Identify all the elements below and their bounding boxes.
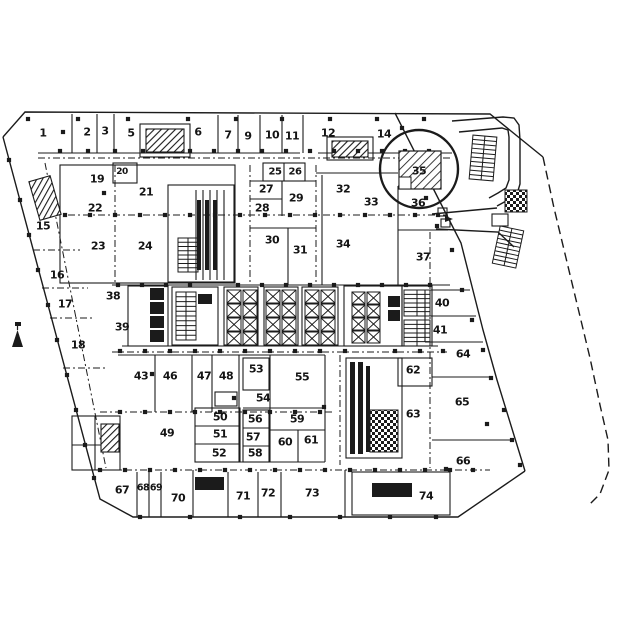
unit-label-56: 56 (248, 413, 263, 426)
unit-label-33: 33 (364, 196, 378, 209)
escalator-block-icon (29, 176, 61, 221)
column-dot (398, 468, 402, 472)
column-dot (234, 117, 238, 121)
column-dot (388, 515, 392, 519)
service-fill (150, 316, 164, 328)
unit-label-12: 12 (321, 127, 335, 140)
column-dot (260, 149, 264, 153)
column-dot (288, 213, 292, 217)
unit-label-51: 51 (213, 428, 227, 441)
column-dot (46, 303, 50, 307)
column-dot (280, 117, 284, 121)
unit-label-52: 52 (212, 447, 226, 460)
unit-label-16: 16 (50, 269, 65, 282)
column-dot (238, 515, 242, 519)
plan-root: 1235679101112141516171819202122232425262… (3, 112, 609, 519)
column-dot (36, 268, 40, 272)
column-dot (288, 515, 292, 519)
column-dot (489, 376, 493, 380)
column-dot (193, 410, 197, 414)
unit-label-57: 57 (246, 431, 260, 444)
column-dot (338, 213, 342, 217)
unit-label-40: 40 (435, 297, 450, 310)
service-fill (388, 296, 400, 307)
unit-label-10: 10 (265, 129, 280, 142)
unit-label-64: 64 (456, 348, 471, 361)
column-dot (116, 283, 120, 287)
stair-ladder-icon (404, 290, 430, 316)
service-fill (150, 330, 164, 342)
unit-label-17: 17 (58, 298, 72, 311)
column-dot (113, 213, 117, 217)
column-dot (140, 283, 144, 287)
column-dot (65, 373, 69, 377)
unit-label-9: 9 (244, 130, 251, 143)
stair-ladder-icon (176, 292, 196, 340)
column-dot (223, 468, 227, 472)
column-dot (298, 468, 302, 472)
column-dot (268, 349, 272, 353)
unit-label-38: 38 (106, 290, 120, 303)
unit-label-59: 59 (290, 413, 304, 426)
unit-label-54: 54 (256, 392, 271, 405)
column-dot (393, 349, 397, 353)
service-fill (366, 366, 370, 452)
column-dot (148, 468, 152, 472)
unit-label-30: 30 (265, 234, 280, 247)
column-dot (284, 149, 288, 153)
direction-markers (445, 216, 453, 222)
column-dot (356, 283, 360, 287)
unit-label-47: 47 (197, 370, 211, 383)
column-dot (27, 233, 31, 237)
unit-label-49: 49 (160, 427, 174, 440)
column-dot (308, 149, 312, 153)
column-dot (375, 117, 379, 121)
column-dot (163, 213, 167, 217)
unit-label-7: 7 (224, 129, 231, 142)
column-dot (332, 283, 336, 287)
column-dot (422, 117, 426, 121)
column-dot (164, 283, 168, 287)
unit-label-69: 69 (150, 483, 162, 494)
unit-label-67: 67 (115, 484, 129, 497)
column-dot (150, 372, 154, 376)
column-dot (435, 224, 439, 228)
site-boundary (543, 157, 609, 506)
wall-line (436, 229, 514, 247)
column-dot (61, 130, 65, 134)
unit-label-70: 70 (171, 492, 186, 505)
unit-label-11: 11 (285, 130, 299, 143)
unit-label-72: 72 (261, 487, 275, 500)
scanned-floor-plan: 1235679101112141516171819202122232425262… (0, 0, 630, 630)
column-dot (268, 410, 272, 414)
column-dot (102, 191, 106, 195)
column-dot (248, 468, 252, 472)
column-dot (322, 405, 326, 409)
column-dot (460, 288, 464, 292)
column-dot (118, 410, 122, 414)
unit-label-31: 31 (293, 244, 307, 257)
stair-ladder-icon (469, 135, 497, 181)
unit-label-46: 46 (163, 370, 178, 383)
ladder-rail (504, 228, 512, 265)
service-fill (213, 200, 217, 270)
column-dot (236, 283, 240, 287)
unit-label-43: 43 (134, 370, 148, 383)
service-fill (205, 200, 209, 270)
site-boundary-line (543, 157, 609, 506)
unit-label-3: 3 (101, 125, 108, 138)
column-dot (188, 515, 192, 519)
column-dot (273, 468, 277, 472)
unit-label-21: 21 (139, 186, 153, 199)
column-dot (441, 349, 445, 353)
column-dot (232, 396, 236, 400)
unit-label-58: 58 (248, 447, 262, 460)
unit-label-32: 32 (336, 183, 350, 196)
unit-label-18: 18 (71, 339, 85, 352)
column-dot (188, 213, 192, 217)
unit-label-2: 2 (83, 126, 90, 139)
unit-label-66: 66 (456, 455, 471, 468)
column-dot (198, 468, 202, 472)
column-dot (188, 283, 192, 287)
unit-label-36: 36 (411, 197, 426, 210)
column-dot (26, 117, 30, 121)
unit-label-65: 65 (455, 396, 469, 409)
highlighted-unit-notch (399, 177, 411, 189)
column-dot (318, 410, 322, 414)
unit-label-35: 35 (412, 165, 426, 178)
column-dot (518, 463, 522, 467)
column-dot (138, 515, 142, 519)
unit-label-68: 68 (137, 483, 150, 494)
column-dot (260, 283, 264, 287)
column-dot (485, 422, 489, 426)
column-dot (471, 468, 475, 472)
unit-label-62: 62 (406, 364, 420, 377)
column-dot (126, 117, 130, 121)
unit-label-27: 27 (259, 183, 273, 196)
service-fill (195, 477, 224, 490)
service-fill (150, 288, 164, 300)
column-dot (18, 198, 22, 202)
unit-label-60: 60 (278, 436, 293, 449)
column-dot (55, 338, 59, 342)
service-fill (388, 310, 400, 321)
unit-label-25: 25 (269, 167, 282, 178)
column-dot (418, 349, 422, 353)
column-dot (404, 283, 408, 287)
column-dot (318, 349, 322, 353)
column-dot (118, 349, 122, 353)
unit-label-74: 74 (419, 490, 434, 503)
unit-label-48: 48 (219, 370, 233, 383)
unit-label-26: 26 (289, 167, 302, 178)
unit-label-55: 55 (295, 371, 309, 384)
column-dot (7, 158, 11, 162)
column-dot (76, 117, 80, 121)
unit-label-71: 71 (236, 490, 250, 503)
machine-block-icon (505, 190, 527, 212)
north-arrow-triangle (12, 330, 23, 347)
partition-rect (264, 287, 298, 345)
unit-label-50: 50 (213, 411, 228, 424)
unit-label-73: 73 (305, 487, 319, 500)
column-dot (450, 248, 454, 252)
column-dot (138, 213, 142, 217)
column-dot (186, 117, 190, 121)
service-fill (358, 362, 363, 454)
column-dot (308, 283, 312, 287)
column-dot (212, 149, 216, 153)
column-dot (400, 126, 404, 130)
column-dot (218, 349, 222, 353)
unit-label-53: 53 (249, 363, 263, 376)
column-dot (348, 468, 352, 472)
unit-label-29: 29 (289, 192, 303, 205)
escalator-block-icon (332, 141, 368, 157)
column-dot (428, 283, 432, 287)
north-arrow-flag (15, 322, 21, 326)
service-fill (350, 362, 355, 454)
column-dot (141, 149, 145, 153)
column-dot (168, 349, 172, 353)
column-dot (213, 213, 217, 217)
partition-rect (302, 287, 338, 345)
unit-label-23: 23 (91, 240, 105, 253)
service-fill (372, 483, 412, 497)
partition-rect (492, 214, 508, 226)
unit-label-37: 37 (416, 251, 430, 264)
arrow-marker-icon (445, 216, 453, 222)
column-dot (448, 468, 452, 472)
stair-ladder-icon (178, 238, 198, 272)
unit-label-20: 20 (116, 167, 128, 177)
column-dot (373, 468, 377, 472)
column-dot (470, 318, 474, 322)
north-arrow-icon (12, 322, 23, 347)
column-dot (313, 213, 317, 217)
unit-label-1: 1 (39, 127, 46, 140)
elevator-banks (227, 290, 380, 345)
column-dot (123, 468, 127, 472)
machine-block-icon (370, 410, 398, 452)
column-dot (444, 467, 448, 471)
column-dot (388, 213, 392, 217)
column-dot (58, 149, 62, 153)
column-dot (143, 410, 147, 414)
column-dot (83, 443, 87, 447)
column-dot (173, 468, 177, 472)
column-dot (86, 149, 90, 153)
column-dot (293, 349, 297, 353)
column-dot (380, 283, 384, 287)
column-dot (423, 468, 427, 472)
stair-ladder-icon (404, 320, 430, 346)
unit-label-61: 61 (304, 434, 318, 447)
column-dot (328, 117, 332, 121)
column-dot (98, 468, 102, 472)
column-dot (168, 410, 172, 414)
column-dot (74, 408, 78, 412)
column-dot (363, 213, 367, 217)
column-dot (338, 515, 342, 519)
column-dot (323, 468, 327, 472)
column-dot (243, 349, 247, 353)
column-dot (238, 213, 242, 217)
unit-label-41: 41 (433, 324, 447, 337)
column-dot (284, 283, 288, 287)
escalator-block-icon (101, 424, 119, 452)
column-dot (481, 348, 485, 352)
service-fill (150, 302, 164, 314)
column-dot (434, 515, 438, 519)
unit-label-14: 14 (377, 128, 392, 141)
unit-label-22: 22 (88, 202, 102, 215)
unit-label-5: 5 (127, 127, 134, 140)
unit-label-28: 28 (255, 202, 269, 215)
column-dot (92, 476, 96, 480)
column-dot (502, 408, 506, 412)
column-dot (63, 213, 67, 217)
column-dot (343, 349, 347, 353)
column-dot (356, 149, 360, 153)
unit-label-6: 6 (194, 126, 202, 139)
column-dot (193, 349, 197, 353)
unit-label-24: 24 (138, 240, 153, 253)
column-dot (188, 149, 192, 153)
column-dot (113, 149, 117, 153)
column-dot (143, 349, 147, 353)
unit-label-39: 39 (115, 321, 129, 334)
unit-label-15: 15 (36, 220, 50, 233)
column-dot (436, 213, 440, 217)
floor-plan-canvas: 1235679101112141516171819202122232425262… (0, 0, 630, 630)
escalator-block-icon (146, 129, 184, 152)
unit-label-19: 19 (90, 173, 104, 186)
column-dot (236, 149, 240, 153)
column-dot (510, 438, 514, 442)
unit-label-63: 63 (406, 408, 420, 421)
column-dot (413, 213, 417, 217)
unit-label-34: 34 (336, 238, 351, 251)
service-fill (198, 294, 212, 304)
column-dot (243, 410, 247, 414)
column-dot (332, 149, 336, 153)
wall-line (432, 208, 497, 214)
